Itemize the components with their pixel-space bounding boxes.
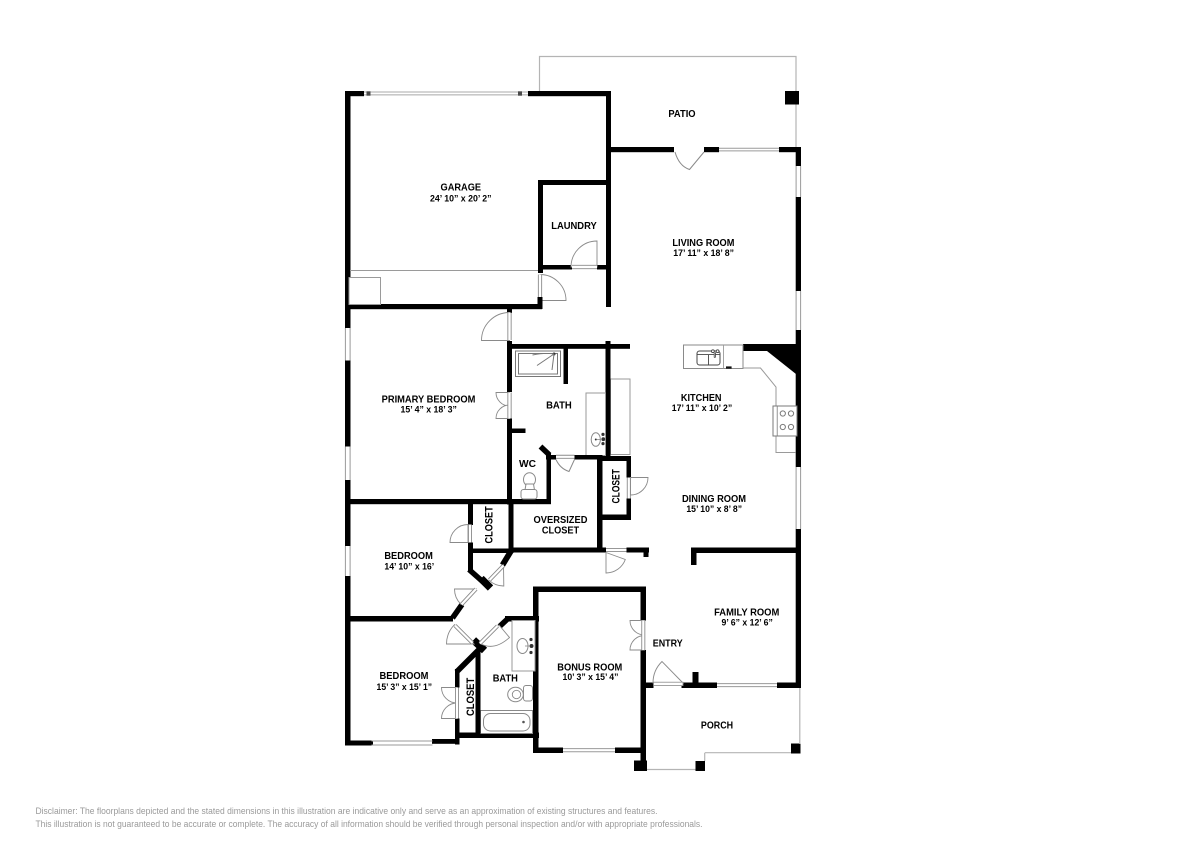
svg-text:9’ 6” x 12’ 6”: 9’ 6” x 12’ 6”	[722, 617, 773, 628]
svg-text:WC: WC	[519, 459, 536, 470]
svg-text:17’ 11” x 18’ 8”: 17’ 11” x 18’ 8”	[673, 247, 734, 258]
svg-text:17’ 11” x 10’ 2”: 17’ 11” x 10’ 2”	[672, 402, 732, 413]
svg-text:14’ 10” x 16’: 14’ 10” x 16’	[384, 561, 434, 572]
svg-text:15’ 10” x 8’ 8”: 15’ 10” x 8’ 8”	[686, 503, 742, 514]
svg-text:CLOSET: CLOSET	[611, 469, 623, 503]
svg-text:CLOSET: CLOSET	[484, 506, 496, 543]
svg-text:15’ 3” x 15’ 1”: 15’ 3” x 15’ 1”	[377, 681, 433, 692]
svg-text:LAUNDRY: LAUNDRY	[551, 221, 597, 232]
svg-text:This illustration is not guara: This illustration is not guaranteed to b…	[36, 819, 703, 830]
svg-text:PORCH: PORCH	[701, 721, 733, 732]
svg-text:Disclaimer: The floorplans dep: Disclaimer: The floorplans depicted and …	[36, 806, 658, 817]
svg-text:10’ 3” x 15’ 4”: 10’ 3” x 15’ 4”	[563, 671, 619, 682]
svg-text:CLOSET: CLOSET	[542, 525, 580, 536]
svg-text:BATH: BATH	[493, 673, 518, 684]
svg-text:15’ 4” x 18’ 3”: 15’ 4” x 18’ 3”	[401, 403, 457, 414]
svg-text:PATIO: PATIO	[668, 109, 695, 120]
svg-text:BATH: BATH	[546, 401, 572, 412]
svg-text:CLOSET: CLOSET	[465, 678, 477, 716]
svg-text:24’ 10” x 20’ 2”: 24’ 10” x 20’ 2”	[430, 193, 492, 204]
svg-text:ENTRY: ENTRY	[653, 638, 683, 649]
